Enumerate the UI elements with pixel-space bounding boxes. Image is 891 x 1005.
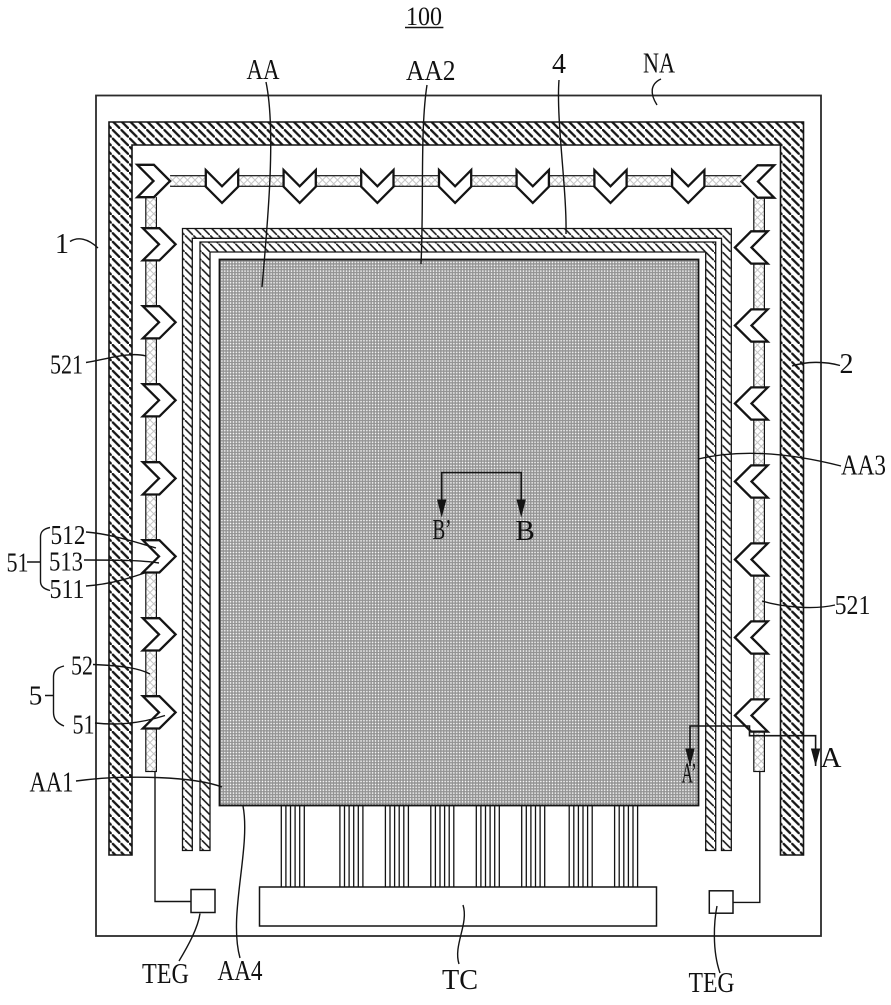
svg-text:521: 521	[50, 350, 83, 380]
svg-text:512: 512	[51, 520, 86, 550]
svg-text:TEG: TEG	[142, 959, 189, 990]
svg-text:AA4: AA4	[218, 956, 263, 987]
svg-text:100: 100	[406, 2, 442, 31]
svg-text:NA: NA	[643, 49, 676, 80]
svg-text:51: 51	[73, 710, 95, 740]
svg-text:AA2: AA2	[406, 56, 456, 87]
svg-text:4: 4	[552, 49, 566, 80]
svg-text:A: A	[821, 742, 842, 774]
svg-text:B’: B’	[433, 514, 452, 546]
svg-text:51: 51	[7, 548, 29, 578]
svg-text:AA3: AA3	[841, 451, 886, 482]
svg-text:513: 513	[49, 547, 83, 577]
svg-text:A’: A’	[682, 758, 697, 790]
svg-text:TEG: TEG	[689, 968, 735, 999]
svg-text:TC: TC	[442, 965, 478, 996]
svg-text:5: 5	[29, 681, 43, 711]
svg-text:52: 52	[71, 651, 93, 681]
svg-text:511: 511	[50, 574, 85, 604]
svg-text:AA1: AA1	[30, 768, 74, 799]
svg-text:1: 1	[55, 229, 69, 260]
svg-text:AA: AA	[247, 55, 281, 86]
svg-text:B: B	[515, 515, 534, 547]
svg-text:2: 2	[840, 349, 854, 380]
svg-text:521: 521	[835, 590, 871, 620]
